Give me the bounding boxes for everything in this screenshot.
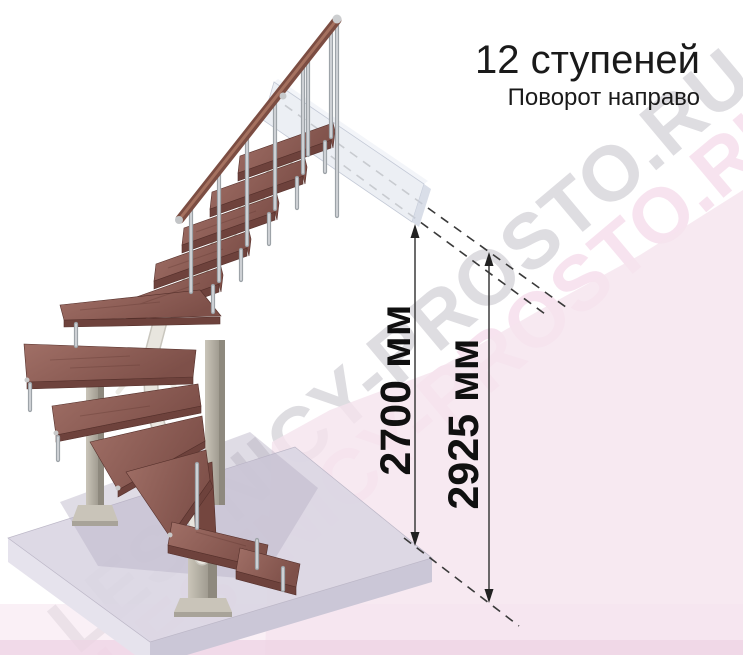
dimension-label-2925: 2925 мм: [440, 338, 488, 509]
dimension-label-2700: 2700 мм: [372, 304, 420, 475]
header: 12 ступеней Поворот направо: [475, 40, 700, 111]
rail-top-cap: [333, 15, 342, 24]
diagram-stage: LESTNICY-PROSTO.RU LESTNICY-PROSTO.RU: [0, 0, 743, 655]
page-subtitle: Поворот направо: [475, 85, 700, 111]
rail-sleeve: [280, 93, 287, 100]
page-title: 12 ступеней: [475, 40, 700, 80]
rail-end-ferrule: [175, 216, 183, 224]
